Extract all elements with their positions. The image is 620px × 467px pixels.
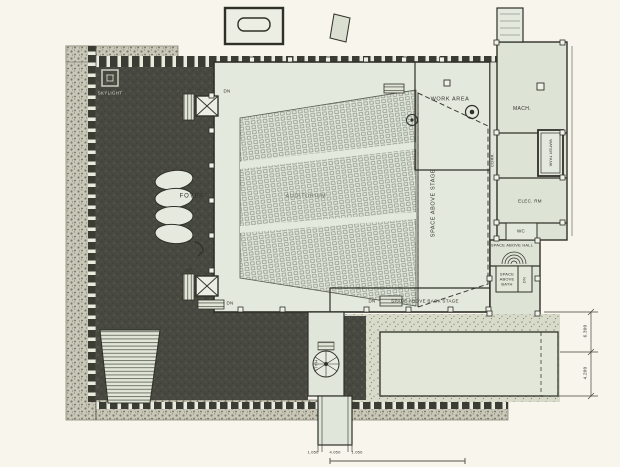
elevator-icon-bottom	[196, 276, 218, 296]
wc-room	[506, 223, 537, 240]
plan-linework	[0, 0, 620, 467]
roof-terrace-strip	[344, 316, 366, 400]
dn-stair-slot	[518, 266, 532, 292]
pit-stair	[380, 296, 402, 306]
entrance-canopy	[225, 8, 283, 44]
bath-room	[496, 266, 518, 292]
exterior-stair	[100, 330, 160, 403]
clerestory-band-left	[88, 46, 96, 402]
stair-bottom	[198, 300, 224, 309]
roof-monitor	[330, 14, 350, 42]
elevator-icon-top	[196, 96, 218, 116]
water-tank-room	[538, 130, 563, 176]
annex-roof	[380, 332, 558, 396]
clerestory-band-bottom	[96, 402, 508, 409]
auditorium-seating	[240, 90, 416, 306]
stair-top-center	[384, 84, 404, 93]
floor-plan-canvas: SKYLIGHT DN FOYER UP DN DN AUDITORIUM SP…	[0, 0, 620, 467]
scale-bar	[330, 458, 465, 464]
stair-bottom-left	[183, 274, 194, 300]
stair-top	[183, 94, 194, 120]
